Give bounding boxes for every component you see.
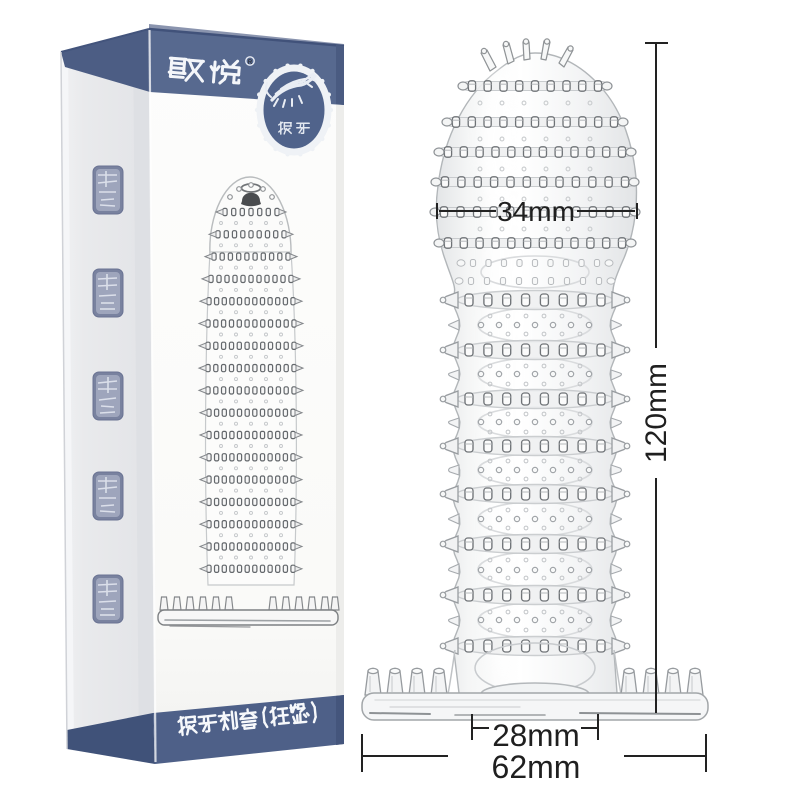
svg-text:28mm: 28mm xyxy=(492,717,580,753)
svg-text:62mm: 62mm xyxy=(492,749,581,785)
svg-text:120mm: 120mm xyxy=(640,363,673,463)
svg-text:R: R xyxy=(248,60,253,66)
svg-text:34mm: 34mm xyxy=(497,196,575,227)
